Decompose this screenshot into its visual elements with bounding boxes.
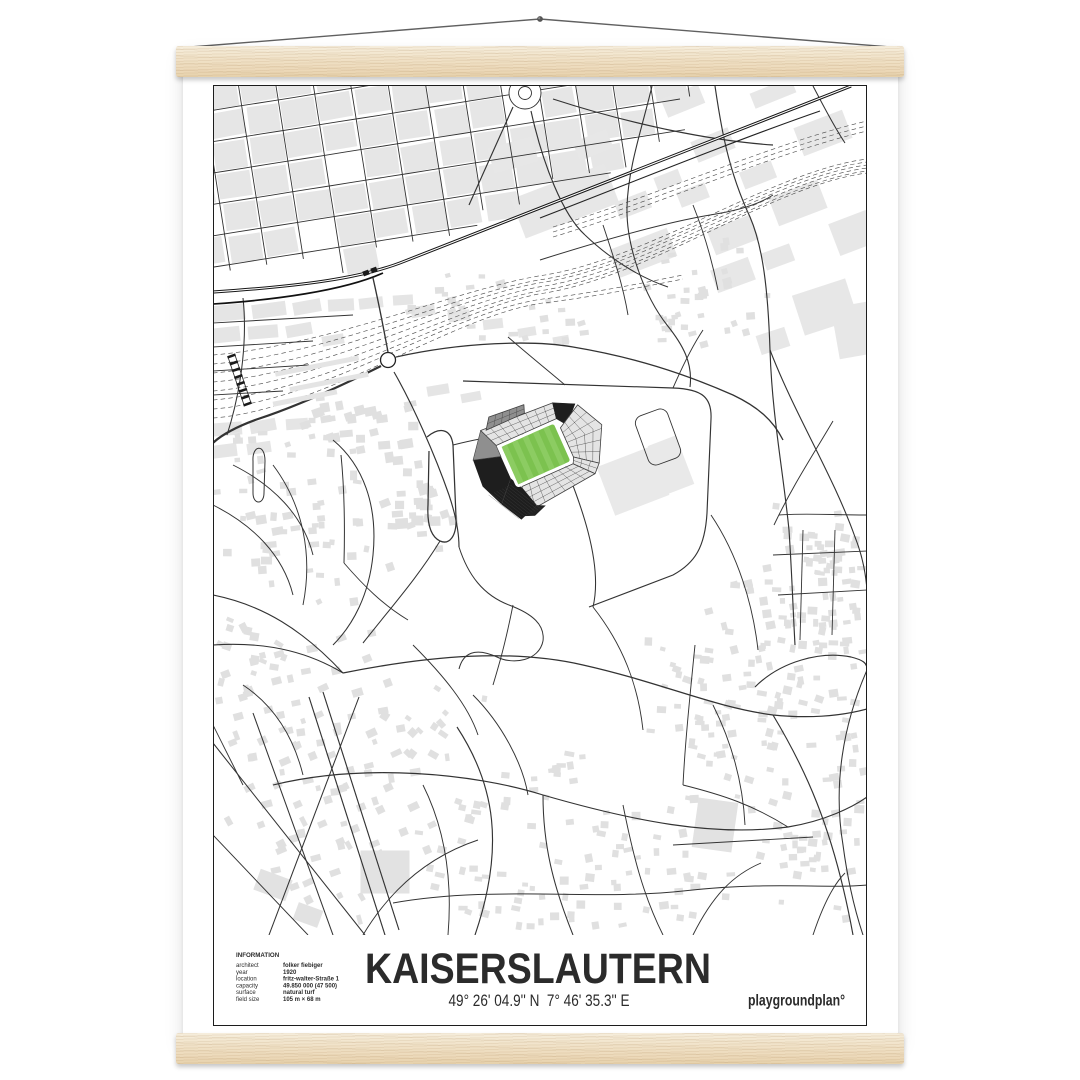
svg-text:49.850 000 (47 500): 49.850 000 (47 500) <box>283 983 337 989</box>
svg-text:folker fiebiger: folker fiebiger <box>283 963 323 969</box>
svg-text:surface: surface <box>236 990 256 996</box>
svg-text:playgroundplan°: playgroundplan° <box>748 993 845 1010</box>
svg-text:KAISERSLAUTERN: KAISERSLAUTERN <box>365 945 711 993</box>
svg-text:architect: architect <box>236 963 259 969</box>
svg-text:1920: 1920 <box>283 970 297 976</box>
svg-text:field size: field size <box>236 997 260 1003</box>
svg-text:49° 26' 04.9'' N 7° 46' 35.3': 49° 26' 04.9'' N 7° 46' 35.3'' E <box>449 992 630 1010</box>
svg-text:105 m × 68 m: 105 m × 68 m <box>283 997 321 1003</box>
svg-text:capacity: capacity <box>236 983 258 989</box>
svg-text:fritz-walter-Straße 1: fritz-walter-Straße 1 <box>283 977 340 983</box>
svg-text:location: location <box>236 977 257 983</box>
svg-text:INFORMATION: INFORMATION <box>236 952 280 959</box>
svg-text:natural turf: natural turf <box>283 990 316 996</box>
svg-text:year: year <box>236 970 248 976</box>
